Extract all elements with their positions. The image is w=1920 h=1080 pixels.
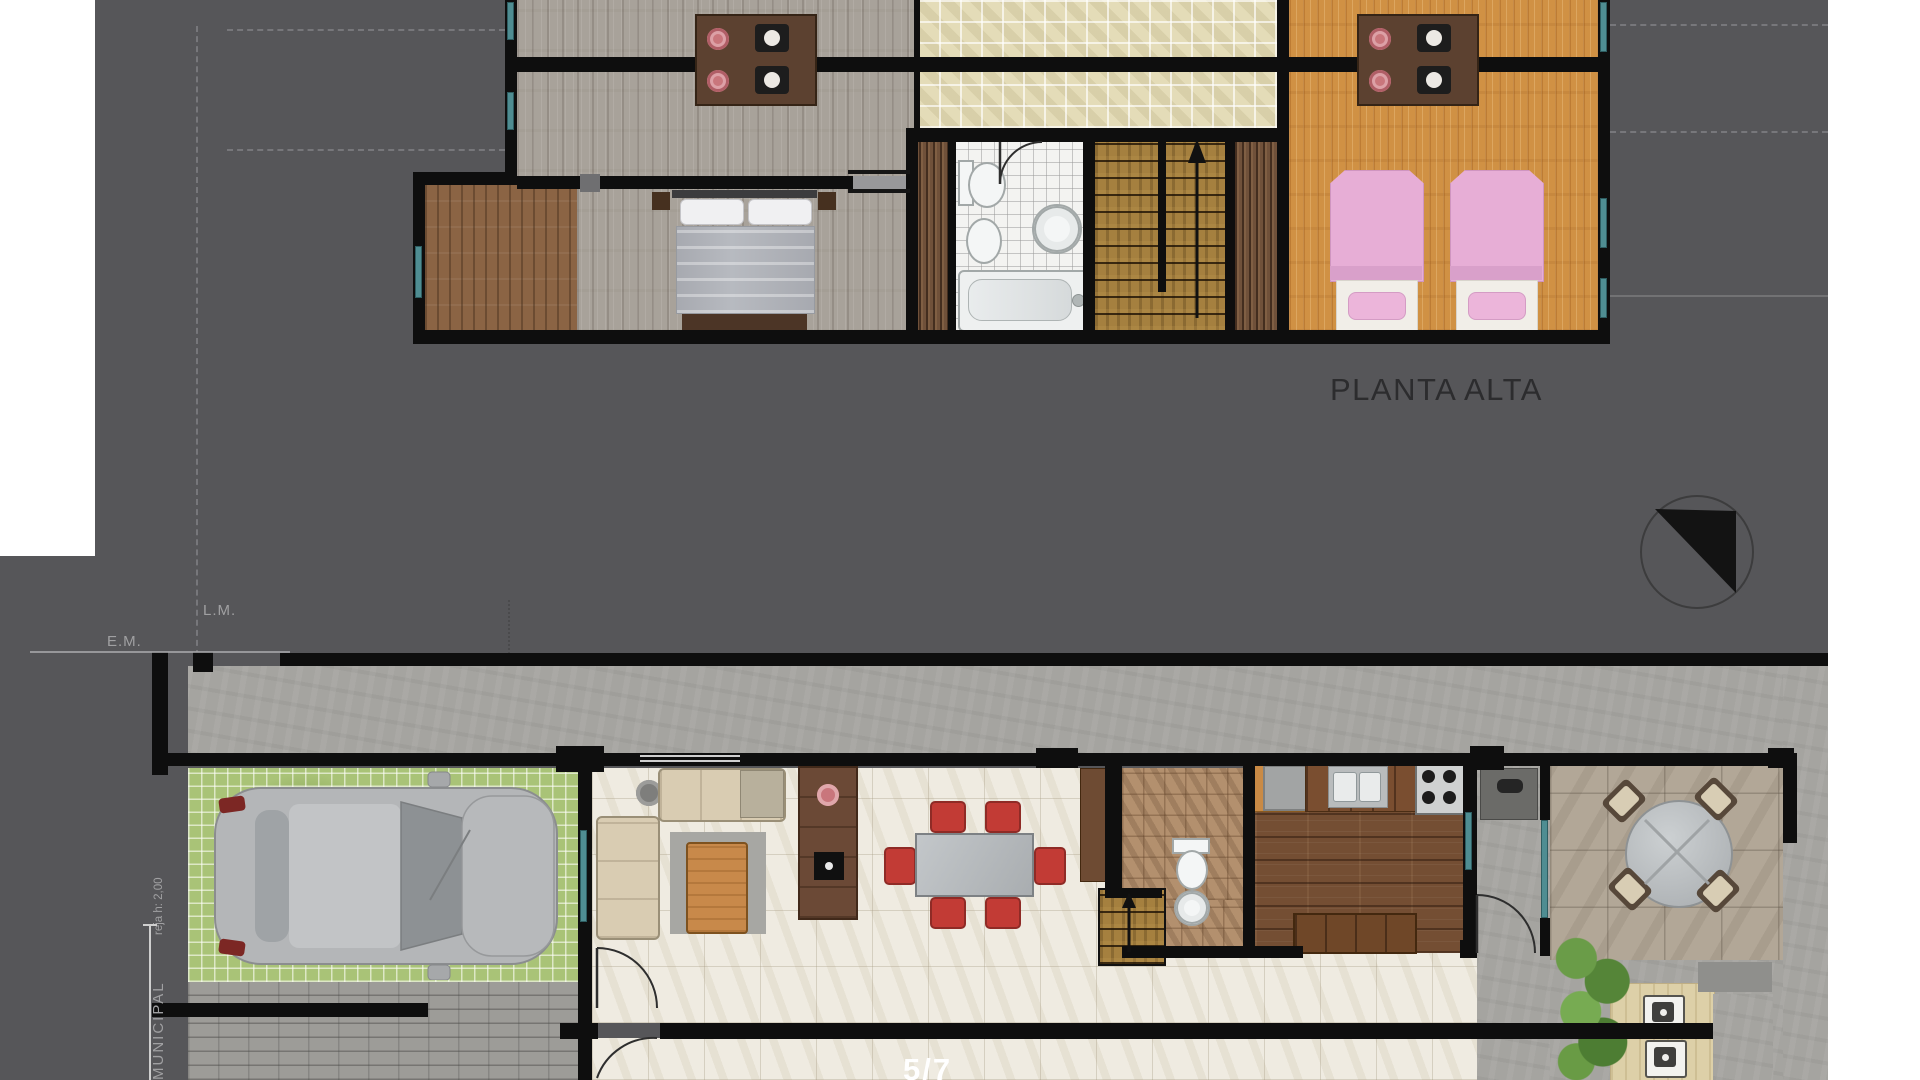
bed-pillow bbox=[1348, 292, 1406, 320]
rear-landing bbox=[1698, 962, 1772, 992]
dining-table bbox=[915, 833, 1034, 897]
pedestal-sink bbox=[1174, 890, 1210, 926]
wall-pier bbox=[193, 652, 213, 672]
window bbox=[1600, 198, 1607, 248]
master-bed bbox=[672, 190, 817, 332]
dining-chair bbox=[930, 801, 966, 833]
nightstand bbox=[652, 192, 670, 210]
tv-indicator bbox=[825, 862, 833, 870]
window bbox=[415, 246, 422, 298]
kitchen-sink-unit bbox=[1328, 766, 1388, 808]
bedroom-desk bbox=[1357, 14, 1479, 106]
bathtub-basin bbox=[968, 279, 1072, 321]
floor-plan-sheet: PLANTA ALTA bbox=[0, 0, 1920, 1080]
wall bbox=[280, 653, 1828, 666]
decor-plate bbox=[817, 784, 839, 806]
wall-pier bbox=[1036, 748, 1078, 768]
sofa-chaise bbox=[740, 770, 784, 818]
burner bbox=[1443, 791, 1456, 804]
single-bed bbox=[1330, 166, 1422, 332]
laundry-sink bbox=[1497, 779, 1523, 793]
side-passage bbox=[1783, 666, 1828, 1080]
reference-line bbox=[1610, 131, 1828, 133]
desk-chair bbox=[1417, 66, 1451, 94]
dimension-tick bbox=[143, 924, 157, 926]
reference-line bbox=[1610, 24, 1828, 26]
window bbox=[1600, 2, 1607, 52]
dining-chair bbox=[985, 801, 1021, 833]
sink-basin bbox=[1333, 772, 1357, 802]
utility-corridor-floor bbox=[1477, 1038, 1557, 1080]
paper-margin-right bbox=[1828, 0, 1920, 1080]
car bbox=[200, 770, 580, 980]
reference-line bbox=[227, 149, 505, 151]
bed-duvet bbox=[676, 226, 815, 314]
paper-margin-left bbox=[0, 0, 95, 556]
bidet bbox=[966, 218, 1002, 264]
walkin-closet-floor bbox=[425, 185, 577, 332]
dining-chair bbox=[884, 847, 916, 885]
burner bbox=[1422, 770, 1435, 783]
corridor-floor bbox=[592, 950, 1550, 1023]
dimension-line bbox=[149, 925, 151, 1080]
dining-chair bbox=[1034, 847, 1066, 885]
desk-chair bbox=[755, 24, 789, 52]
municipal-axis-label: E.M. bbox=[107, 633, 142, 650]
wall bbox=[1122, 946, 1255, 958]
laundry-counter bbox=[1480, 768, 1538, 820]
toilet-bowl bbox=[968, 162, 1006, 208]
bed-foot-bench bbox=[682, 314, 807, 330]
fence-height-note: reja h: 2,00 bbox=[153, 853, 165, 935]
desk-plant-icon bbox=[1369, 28, 1391, 50]
window bbox=[1541, 820, 1548, 918]
dining-chair bbox=[985, 897, 1021, 929]
patio-wall bbox=[1783, 753, 1797, 843]
desk-plant-icon bbox=[707, 70, 729, 92]
wall bbox=[1105, 763, 1122, 888]
wall bbox=[1243, 946, 1303, 958]
wall bbox=[1083, 142, 1095, 344]
property-line-label: L.M. bbox=[203, 602, 236, 619]
window bbox=[1600, 278, 1607, 318]
wall bbox=[906, 128, 918, 344]
nightstand bbox=[818, 192, 836, 210]
page-indicator: 5/7 bbox=[903, 1052, 952, 1080]
window bbox=[580, 830, 587, 922]
rear-wall bbox=[560, 1023, 598, 1039]
stair-divider bbox=[1158, 142, 1166, 292]
wall bbox=[1540, 918, 1550, 956]
desk-chair bbox=[755, 66, 789, 94]
reference-line bbox=[1610, 295, 1828, 297]
brick-pavement bbox=[188, 982, 578, 1080]
wall bbox=[413, 330, 1610, 344]
wall bbox=[948, 142, 956, 344]
hall-cabinet bbox=[1080, 768, 1107, 882]
bed-blanket-fold bbox=[1450, 266, 1542, 280]
rear-wall bbox=[660, 1023, 1713, 1039]
sliding-door-rail bbox=[848, 170, 910, 174]
desk-chair bbox=[1417, 24, 1451, 52]
window-sill-line bbox=[640, 760, 740, 762]
kitchen-island bbox=[1293, 913, 1417, 954]
washing-machine bbox=[1645, 1040, 1687, 1078]
sidewalk bbox=[188, 666, 1828, 755]
wall bbox=[1225, 142, 1235, 344]
wall bbox=[906, 128, 1288, 142]
plan-title: PLANTA ALTA bbox=[1330, 372, 1543, 408]
garden-plant bbox=[1550, 928, 1638, 1080]
window bbox=[507, 2, 514, 40]
dining-chair bbox=[930, 897, 966, 929]
wall bbox=[914, 0, 920, 128]
wall bbox=[1105, 888, 1162, 898]
bed-blanket-fold bbox=[1330, 266, 1422, 280]
wall-pier bbox=[1460, 940, 1477, 958]
municipal-property-line bbox=[196, 26, 198, 656]
window bbox=[507, 92, 514, 130]
stove bbox=[1415, 763, 1467, 815]
bed-pillow bbox=[1468, 292, 1526, 320]
burner bbox=[1443, 770, 1456, 783]
wall bbox=[152, 653, 168, 775]
window bbox=[1465, 812, 1472, 870]
desk-plant-icon bbox=[1369, 70, 1391, 92]
sofa bbox=[596, 816, 660, 940]
bed-pillow bbox=[680, 199, 744, 225]
bed-pillow bbox=[748, 199, 812, 225]
bed-headboard bbox=[672, 190, 817, 198]
wall-column bbox=[580, 174, 600, 192]
study-desk bbox=[695, 14, 817, 106]
desk-plant-icon bbox=[707, 28, 729, 50]
wall bbox=[1277, 0, 1289, 344]
fridge bbox=[1263, 765, 1309, 811]
municipal-axis-line bbox=[30, 651, 290, 653]
wall bbox=[413, 172, 517, 185]
wall bbox=[1540, 760, 1550, 820]
window-sill-line bbox=[640, 755, 740, 757]
municipal-label: MUNICIPAL bbox=[150, 950, 167, 1080]
bedroom-closet bbox=[1235, 142, 1277, 332]
gate-wall bbox=[152, 1003, 428, 1017]
sliding-door-rail bbox=[848, 189, 910, 193]
tv-unit bbox=[798, 766, 858, 920]
bathtub bbox=[958, 270, 1092, 332]
burner bbox=[1422, 791, 1435, 804]
porch-strip-floor bbox=[592, 1038, 1560, 1080]
coffee-table bbox=[686, 842, 748, 934]
reference-line bbox=[227, 29, 505, 31]
sink-basin bbox=[1359, 772, 1381, 802]
rear-slab bbox=[1713, 994, 1773, 1080]
north-arrow-icon bbox=[1630, 485, 1770, 625]
toilet-bowl bbox=[1176, 850, 1208, 890]
wall bbox=[1243, 763, 1255, 946]
sliding-door bbox=[853, 176, 906, 189]
pedestal-sink bbox=[1032, 204, 1082, 254]
single-bed bbox=[1450, 166, 1542, 332]
